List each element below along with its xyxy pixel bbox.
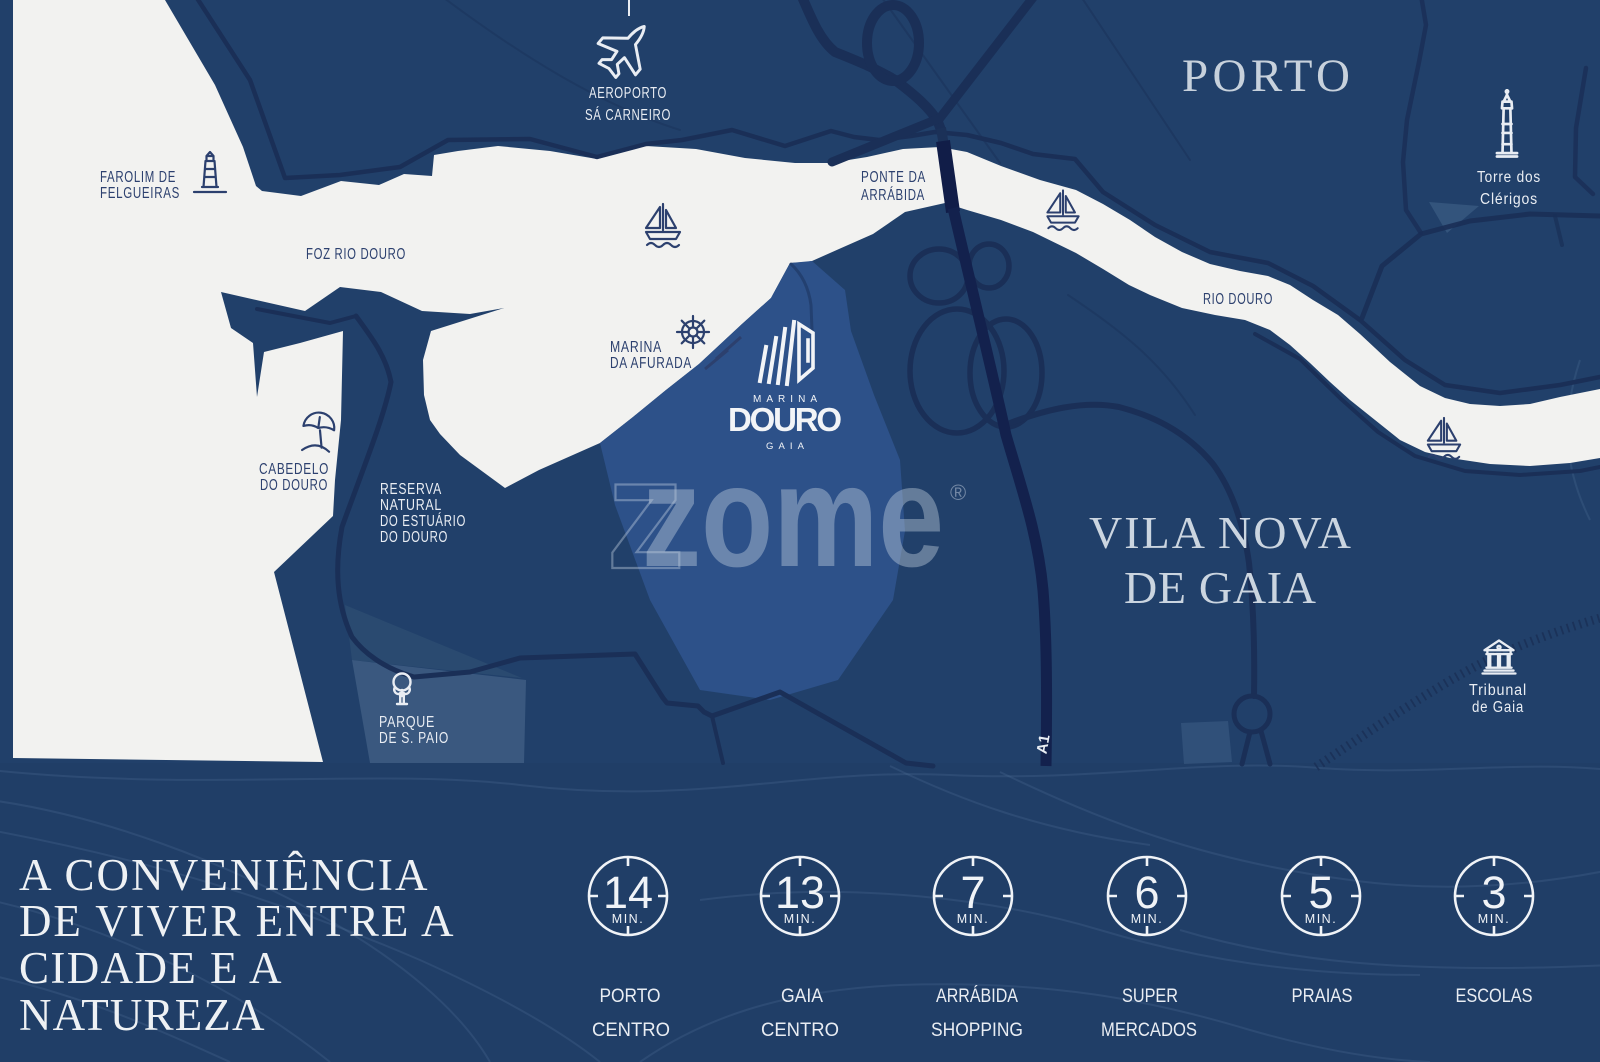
svg-text:PORTO: PORTO <box>600 986 661 1007</box>
svg-text:VILA NOVA: VILA NOVA <box>1089 507 1351 558</box>
svg-text:MIN.: MIN. <box>1478 912 1510 926</box>
svg-text:MIN.: MIN. <box>612 912 644 926</box>
svg-text:ARRÁBIDA: ARRÁBIDA <box>936 986 1018 1007</box>
svg-text:MIN.: MIN. <box>1305 912 1337 926</box>
svg-text:NATURAL: NATURAL <box>380 497 442 514</box>
svg-text:®: ® <box>950 480 966 505</box>
svg-text:6: 6 <box>1134 867 1159 918</box>
svg-text:DOURO: DOURO <box>728 401 842 438</box>
svg-text:SUPER: SUPER <box>1122 986 1178 1007</box>
svg-text:DA AFURADA: DA AFURADA <box>610 355 692 372</box>
svg-text:PARQUE: PARQUE <box>379 714 435 731</box>
svg-text:SHOPPING: SHOPPING <box>931 1020 1023 1041</box>
svg-text:DE S. PAIO: DE S. PAIO <box>379 730 449 747</box>
svg-text:FAROLIM DE: FAROLIM DE <box>100 169 176 186</box>
svg-text:MERCADOS: MERCADOS <box>1101 1020 1197 1041</box>
svg-text:zome: zome <box>642 435 944 597</box>
svg-text:AEROPORTO: AEROPORTO <box>589 85 667 102</box>
svg-text:FOZ RIO DOURO: FOZ RIO DOURO <box>306 246 406 263</box>
svg-text:Clérigos: Clérigos <box>1480 191 1538 208</box>
svg-text:MARINA: MARINA <box>610 339 662 356</box>
svg-text:CENTRO: CENTRO <box>592 1020 670 1041</box>
svg-text:A CONVENIÊNCIA: A CONVENIÊNCIA <box>19 850 429 900</box>
svg-text:de Gaia: de Gaia <box>1472 699 1524 716</box>
svg-text:CABEDELO: CABEDELO <box>259 461 329 478</box>
svg-text:FELGUEIRAS: FELGUEIRAS <box>100 185 180 202</box>
svg-text:DO DOURO: DO DOURO <box>260 477 328 494</box>
svg-text:DE GAIA: DE GAIA <box>1124 562 1316 613</box>
svg-text:PONTE DA: PONTE DA <box>861 169 926 186</box>
svg-text:ARRÁBIDA: ARRÁBIDA <box>861 187 925 204</box>
svg-text:CENTRO: CENTRO <box>761 1020 839 1041</box>
svg-text:PORTO: PORTO <box>1182 50 1350 102</box>
svg-text:CIDADE E A: CIDADE E A <box>19 943 283 993</box>
svg-text:7: 7 <box>960 867 985 918</box>
svg-text:MIN.: MIN. <box>1131 912 1163 926</box>
svg-text:A1: A1 <box>1034 733 1054 755</box>
svg-text:DE VIVER ENTRE A: DE VIVER ENTRE A <box>19 896 455 946</box>
svg-text:MIN.: MIN. <box>784 912 816 926</box>
svg-text:DO DOURO: DO DOURO <box>380 529 448 546</box>
svg-text:SÁ CARNEIRO: SÁ CARNEIRO <box>585 107 671 124</box>
svg-text:PRAIAS: PRAIAS <box>1292 986 1353 1007</box>
svg-text:DO ESTUÁRIO: DO ESTUÁRIO <box>380 513 466 530</box>
svg-text:RESERVA: RESERVA <box>380 481 442 498</box>
svg-text:13: 13 <box>775 867 825 918</box>
svg-text:5: 5 <box>1308 867 1333 918</box>
svg-text:GAIA: GAIA <box>781 986 823 1007</box>
svg-text:NATUREZA: NATUREZA <box>19 990 266 1040</box>
svg-text:Torre dos: Torre dos <box>1477 169 1541 186</box>
svg-text:RIO DOURO: RIO DOURO <box>1203 291 1273 308</box>
svg-text:3: 3 <box>1481 867 1506 918</box>
svg-text:Tribunal: Tribunal <box>1469 682 1527 699</box>
svg-text:ESCOLAS: ESCOLAS <box>1456 986 1533 1007</box>
svg-text:MIN.: MIN. <box>957 912 989 926</box>
svg-text:14: 14 <box>603 867 653 918</box>
